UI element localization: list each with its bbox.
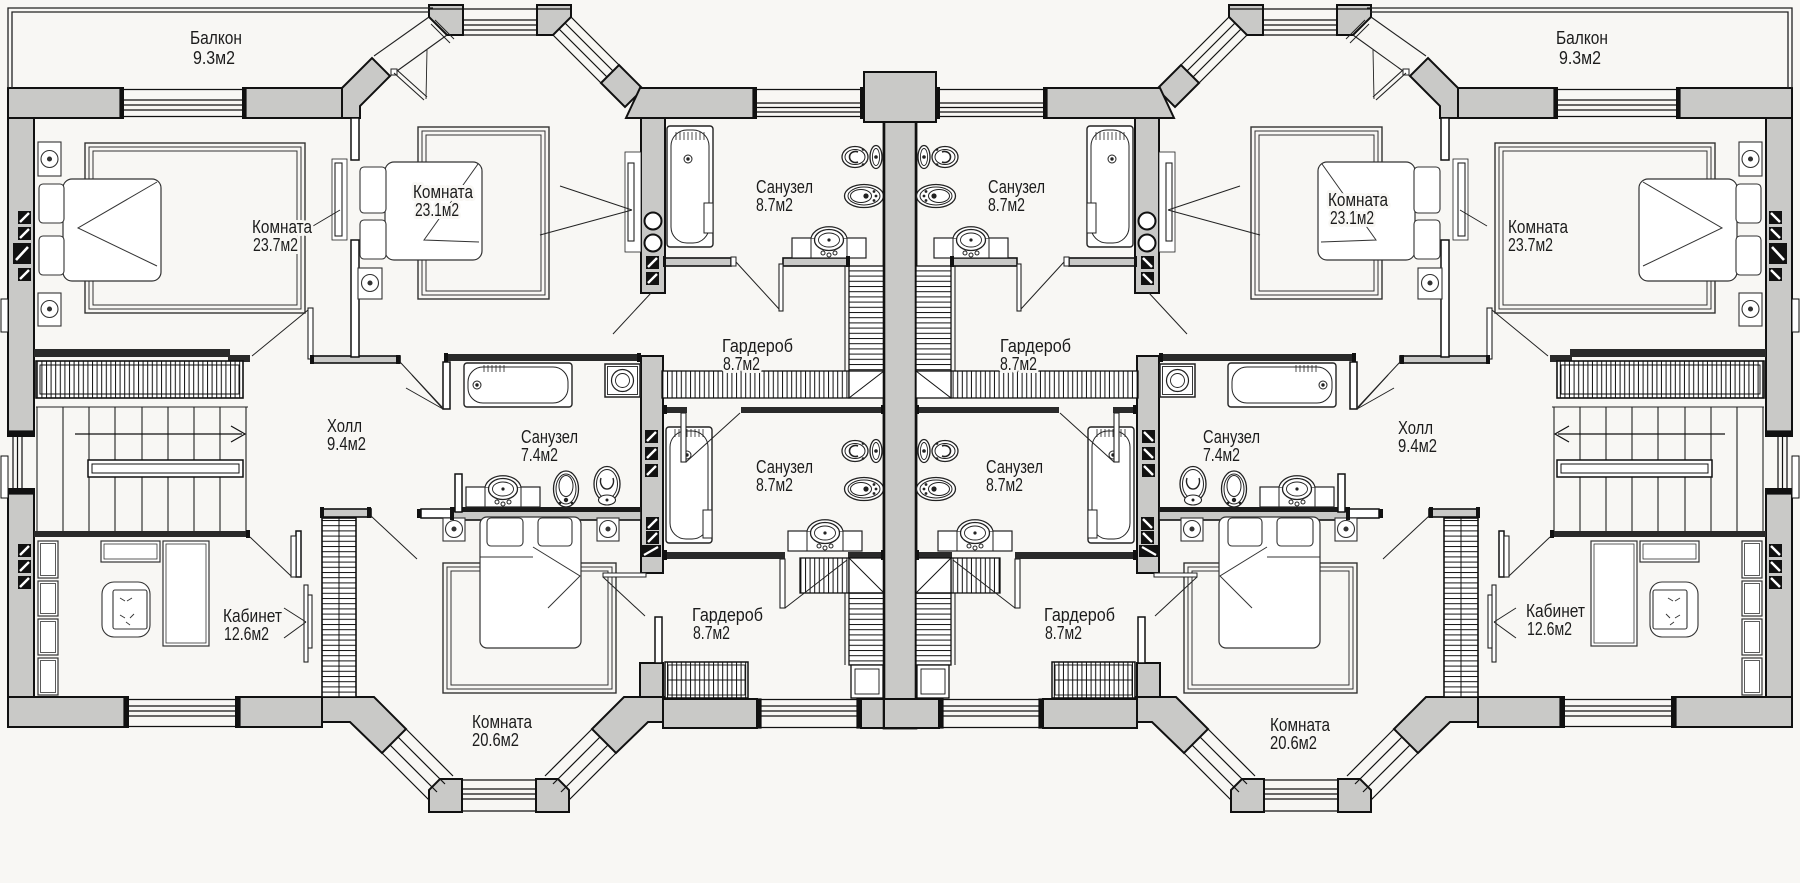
svg-text:Балкон: Балкон xyxy=(190,28,242,48)
svg-text:Комната: Комната xyxy=(472,712,533,732)
svg-text:8.7м2: 8.7м2 xyxy=(723,354,760,374)
svg-text:Холл: Холл xyxy=(1398,418,1433,438)
svg-text:8.7м2: 8.7м2 xyxy=(1045,623,1082,643)
svg-text:Комната: Комната xyxy=(1328,190,1389,210)
svg-text:23.7м2: 23.7м2 xyxy=(253,235,298,255)
svg-text:23.1м2: 23.1м2 xyxy=(415,200,459,220)
svg-text:8.7м2: 8.7м2 xyxy=(756,475,793,495)
svg-text:9.3м2: 9.3м2 xyxy=(193,48,235,68)
svg-text:Гардероб: Гардероб xyxy=(722,336,793,356)
svg-text:Кабинет: Кабинет xyxy=(223,606,282,626)
svg-text:7.4м2: 7.4м2 xyxy=(1203,445,1240,465)
svg-text:20.6м2: 20.6м2 xyxy=(472,730,519,750)
svg-text:23.1м2: 23.1м2 xyxy=(1330,208,1374,228)
svg-text:Гардероб: Гардероб xyxy=(692,605,763,625)
svg-text:Комната: Комната xyxy=(252,217,313,237)
svg-text:Санузел: Санузел xyxy=(521,427,578,447)
svg-text:Санузел: Санузел xyxy=(1203,427,1260,447)
svg-text:9.4м2: 9.4м2 xyxy=(327,434,366,454)
svg-text:8.7м2: 8.7м2 xyxy=(988,195,1025,215)
svg-text:Комната: Комната xyxy=(1508,217,1569,237)
svg-text:Санузел: Санузел xyxy=(756,457,813,477)
svg-text:Комната: Комната xyxy=(1270,715,1331,735)
svg-text:8.7м2: 8.7м2 xyxy=(986,475,1023,495)
svg-text:23.7м2: 23.7м2 xyxy=(1508,235,1553,255)
svg-text:Комната: Комната xyxy=(413,182,474,202)
svg-text:20.6м2: 20.6м2 xyxy=(1270,733,1317,753)
svg-text:12.6м2: 12.6м2 xyxy=(224,624,269,644)
svg-text:Кабинет: Кабинет xyxy=(1526,601,1585,621)
svg-text:12.6м2: 12.6м2 xyxy=(1527,619,1572,639)
svg-text:Санузел: Санузел xyxy=(988,177,1045,197)
svg-text:8.7м2: 8.7м2 xyxy=(1000,354,1037,374)
svg-text:9.3м2: 9.3м2 xyxy=(1559,48,1601,68)
svg-text:Холл: Холл xyxy=(327,416,362,436)
svg-text:Санузел: Санузел xyxy=(756,177,813,197)
svg-text:Гардероб: Гардероб xyxy=(1044,605,1115,625)
svg-text:Санузел: Санузел xyxy=(986,457,1043,477)
svg-text:9.4м2: 9.4м2 xyxy=(1398,436,1437,456)
svg-text:7.4м2: 7.4м2 xyxy=(521,445,558,465)
svg-text:8.7м2: 8.7м2 xyxy=(756,195,793,215)
svg-text:Балкон: Балкон xyxy=(1556,28,1608,48)
svg-text:8.7м2: 8.7м2 xyxy=(693,623,730,643)
svg-text:Гардероб: Гардероб xyxy=(1000,336,1071,356)
